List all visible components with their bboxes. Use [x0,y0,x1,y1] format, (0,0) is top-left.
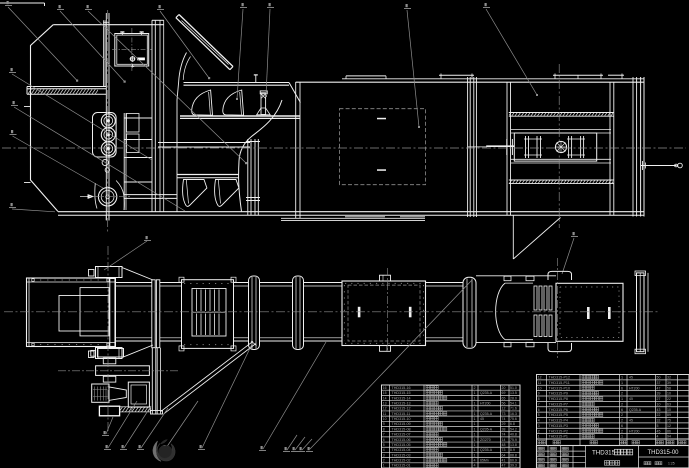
svg-text:4: 4 [474,459,476,463]
svg-text:THD315-P11: THD315-P11 [549,381,570,385]
svg-text:11: 11 [383,412,387,416]
svg-text:THD315-01: THD315-01 [392,464,411,468]
svg-text:2: 2 [621,429,623,433]
svg-text:THD315-13: THD315-13 [392,401,411,405]
svg-text:6: 6 [383,438,385,442]
svg-text:6: 6 [621,408,623,412]
svg-text:HT200: HT200 [480,401,491,405]
svg-text:1: 1 [474,448,476,452]
svg-text:48: 48 [502,443,506,447]
svg-text:1: 1 [474,433,476,437]
svg-text:7: 7 [538,402,540,406]
svg-text:45: 45 [657,429,661,433]
svg-text:11: 11 [538,381,542,385]
svg-text:2: 2 [621,402,623,406]
svg-text:10: 10 [657,402,661,406]
svg-text:1: 1 [621,376,623,380]
svg-text:9: 9 [538,392,540,396]
svg-text:13: 13 [383,401,387,405]
svg-text:45: 45 [629,376,633,380]
svg-text:88.8: 88.8 [510,453,517,457]
svg-text:32: 32 [667,376,671,380]
svg-text:1: 1 [474,417,476,421]
svg-text:10: 10 [383,417,387,421]
svg-text:1: 1 [474,453,476,457]
svg-text:86: 86 [667,429,671,433]
svg-text:1: 1 [621,435,623,439]
svg-text:37: 37 [657,381,661,385]
svg-text:7: 7 [383,433,385,437]
svg-text:12: 12 [383,407,387,411]
svg-text:THD315-14: THD315-14 [392,396,411,400]
svg-text:32: 32 [657,419,661,423]
svg-text:THD315-16: THD315-16 [392,386,411,390]
svg-text:65Mn: 65Mn [480,459,489,463]
svg-text:THD315-02: THD315-02 [392,459,411,463]
svg-text:2: 2 [538,429,540,433]
svg-text:THD315-P10: THD315-P10 [549,386,571,390]
svg-text:13.5: 13.5 [510,391,517,395]
svg-text:1:25: 1:25 [668,461,675,465]
svg-text:54.2: 54.2 [510,427,517,431]
svg-text:THD315-P8: THD315-P8 [549,397,568,401]
svg-text:THD315-12: THD315-12 [392,407,411,411]
svg-text:65: 65 [502,396,506,400]
svg-text:8.9: 8.9 [510,448,515,452]
svg-text:74: 74 [502,433,506,437]
svg-text:12: 12 [667,424,671,428]
svg-text:2: 2 [383,459,385,463]
svg-text:39: 39 [657,392,661,396]
svg-text:6: 6 [538,408,540,412]
svg-text:1: 1 [474,391,476,395]
svg-text:45: 45 [480,417,484,421]
svg-text:THD315-11: THD315-11 [392,412,411,416]
svg-text:20: 20 [502,386,506,390]
svg-text:41: 41 [502,459,506,463]
svg-text:THD315-07: THD315-07 [392,433,411,437]
svg-text:4: 4 [383,448,385,452]
svg-text:50: 50 [657,376,661,380]
svg-text:10: 10 [667,408,671,412]
svg-text:1: 1 [474,407,476,411]
svg-text:6: 6 [621,386,623,390]
svg-text:2: 2 [621,392,623,396]
svg-text:38: 38 [502,427,506,431]
svg-text:THD315-00: THD315-00 [647,450,679,456]
svg-text:THD315-P2: THD315-P2 [549,429,568,433]
svg-text:5: 5 [538,413,540,417]
svg-text:Q235-A: Q235-A [480,412,493,416]
svg-text:1: 1 [383,464,385,468]
svg-text:6.8: 6.8 [510,422,515,426]
svg-text:9: 9 [383,422,385,426]
svg-text:27: 27 [657,397,661,401]
svg-text:THD315-15: THD315-15 [392,391,411,395]
svg-text:56: 56 [502,401,506,405]
svg-text:1: 1 [474,438,476,442]
svg-text:THD315-P9: THD315-P9 [549,392,568,396]
svg-text:THD315-P7: THD315-P7 [549,402,568,406]
svg-text:22: 22 [657,413,661,417]
svg-text:THD315-08: THD315-08 [392,427,411,431]
svg-text:THD315-03: THD315-03 [392,453,411,457]
svg-text:60.9: 60.9 [510,459,517,463]
svg-text:47: 47 [502,464,506,468]
svg-text:4: 4 [657,435,659,439]
svg-text:4: 4 [474,464,476,468]
svg-text:THD315-05: THD315-05 [392,443,411,447]
svg-text:58: 58 [667,386,671,390]
svg-text:4: 4 [538,419,540,423]
svg-text:1: 1 [474,427,476,431]
svg-text:75.9: 75.9 [510,438,517,442]
svg-text:63: 63 [667,402,671,406]
svg-text:45: 45 [629,419,633,423]
svg-text:2: 2 [621,413,623,417]
svg-text:39.3: 39.3 [510,464,517,468]
svg-text:28.0: 28.0 [510,396,517,400]
svg-text:THD315-P1: THD315-P1 [549,435,568,439]
svg-text:8: 8 [538,397,540,401]
svg-text:ZG270: ZG270 [480,438,491,442]
svg-text:45: 45 [629,397,633,401]
svg-text:Q235-A: Q235-A [480,427,493,431]
svg-text:HT200: HT200 [629,429,640,433]
svg-text:HT200: HT200 [629,386,640,390]
svg-text:73: 73 [502,412,506,416]
svg-text:THD315-10: THD315-10 [392,417,411,421]
svg-text:1: 1 [621,381,623,385]
svg-text:2: 2 [474,386,476,390]
svg-text:22: 22 [667,397,671,401]
svg-text:47: 47 [657,386,661,390]
svg-text:51.0: 51.0 [510,386,517,390]
svg-text:THD315-09: THD315-09 [392,422,411,426]
svg-text:3: 3 [538,424,540,428]
svg-text:THD315-06: THD315-06 [392,438,411,442]
svg-text:40.8: 40.8 [510,433,517,437]
svg-text:12: 12 [538,376,542,380]
svg-text:THD315-P6: THD315-P6 [549,408,568,412]
svg-text:89: 89 [667,413,671,417]
svg-text:94: 94 [667,435,671,439]
svg-text:THD315-P4: THD315-P4 [549,419,568,423]
svg-text:14: 14 [502,438,506,442]
svg-text:1: 1 [474,443,476,447]
svg-text:6: 6 [621,424,623,428]
svg-text:8: 8 [383,427,385,431]
svg-text:1: 1 [474,412,476,416]
svg-text:69: 69 [502,391,506,395]
svg-text:13.8: 13.8 [510,443,517,447]
svg-text:54.1: 54.1 [510,401,517,405]
svg-text:64: 64 [502,453,506,457]
svg-text:10: 10 [667,392,671,396]
svg-text:10: 10 [538,386,542,390]
svg-text:71.6: 71.6 [510,407,517,411]
svg-text:5: 5 [383,443,385,447]
svg-text:THD315-04: THD315-04 [392,448,411,452]
svg-text:15: 15 [383,391,387,395]
svg-text:75.6: 75.6 [510,417,517,421]
svg-text:5: 5 [657,424,659,428]
svg-text:43: 43 [657,408,661,412]
svg-text:16: 16 [383,386,387,390]
svg-text:THD315-P5: THD315-P5 [549,413,568,417]
svg-text:Q235-A: Q235-A [629,408,642,412]
svg-text:THD315-P3: THD315-P3 [549,424,568,428]
svg-text:16.3: 16.3 [510,412,517,416]
svg-text:39: 39 [667,381,671,385]
svg-text:1: 1 [538,435,540,439]
svg-text:29: 29 [502,422,506,426]
svg-text:14: 14 [383,396,387,400]
svg-text:1: 1 [621,397,623,401]
svg-text:12: 12 [502,407,506,411]
svg-text:75: 75 [667,419,671,423]
svg-text:2: 2 [621,419,623,423]
svg-text:73: 73 [502,448,506,452]
svg-text:1: 1 [474,396,476,400]
svg-text:3: 3 [383,453,385,457]
svg-text:Q235-A: Q235-A [480,391,493,395]
svg-text:THD315-P12: THD315-P12 [549,376,571,380]
svg-text:1: 1 [474,401,476,405]
svg-text:THD315: THD315 [592,450,616,457]
svg-text:Q235-A: Q235-A [480,448,493,452]
svg-text:1: 1 [474,422,476,426]
svg-text:74: 74 [502,417,506,421]
